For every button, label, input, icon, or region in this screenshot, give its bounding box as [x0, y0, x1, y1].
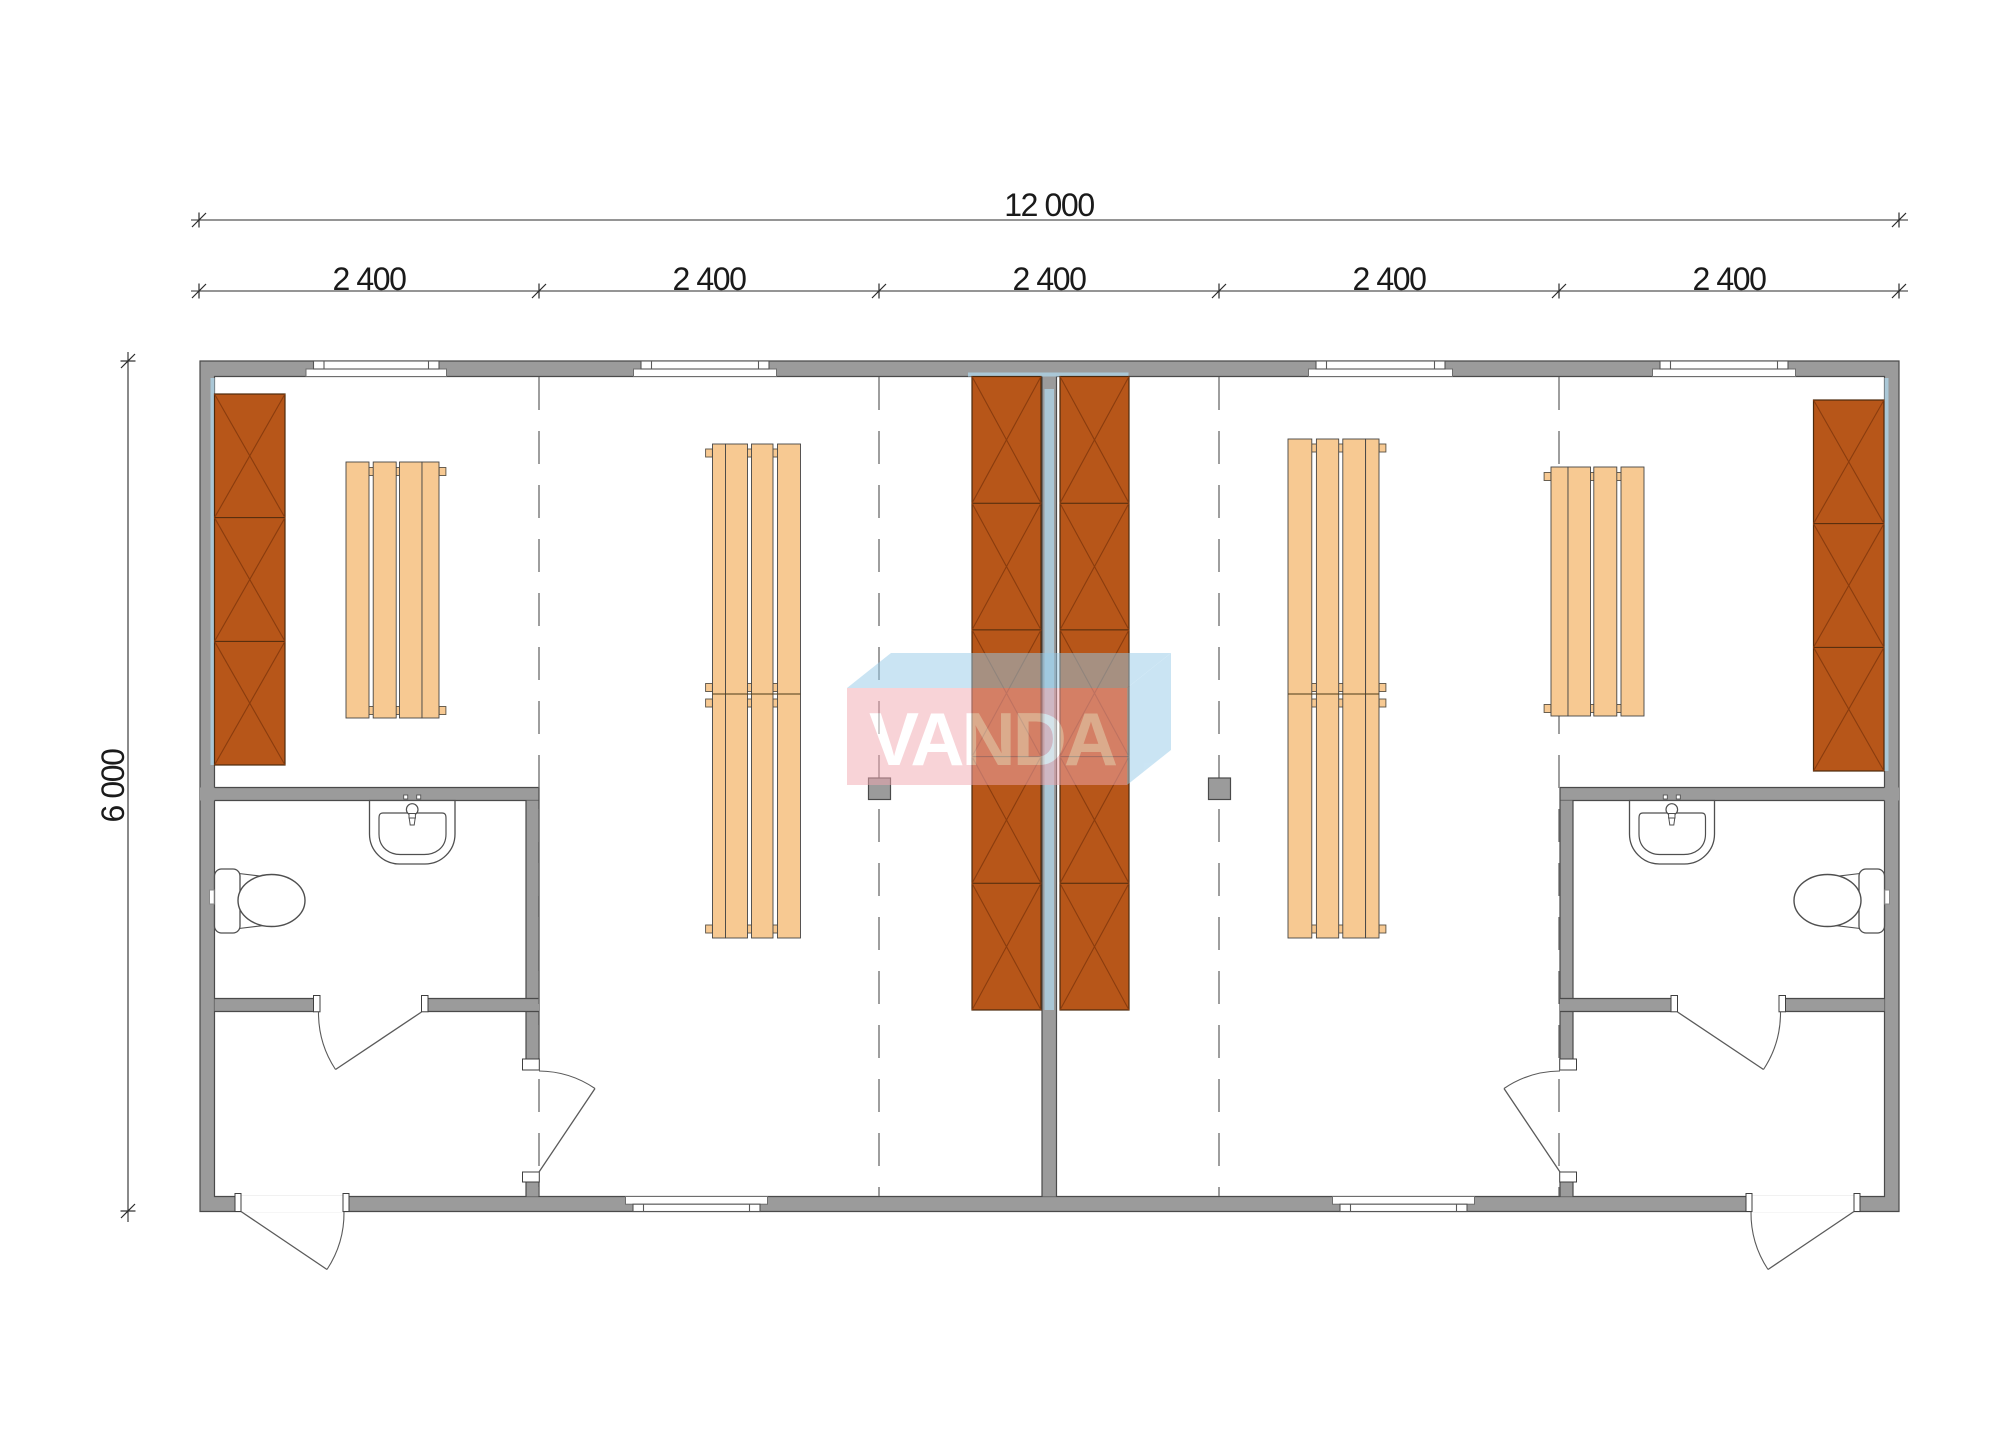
svg-text:12 000: 12 000	[1004, 187, 1094, 223]
svg-text:2 400: 2 400	[1012, 261, 1086, 297]
svg-text:2 400: 2 400	[1352, 261, 1426, 297]
svg-text:VANDA: VANDA	[869, 697, 1117, 781]
svg-text:6 000: 6 000	[95, 749, 131, 823]
svg-text:2 400: 2 400	[1692, 261, 1766, 297]
svg-text:2 400: 2 400	[332, 261, 406, 297]
svg-text:2 400: 2 400	[672, 261, 746, 297]
